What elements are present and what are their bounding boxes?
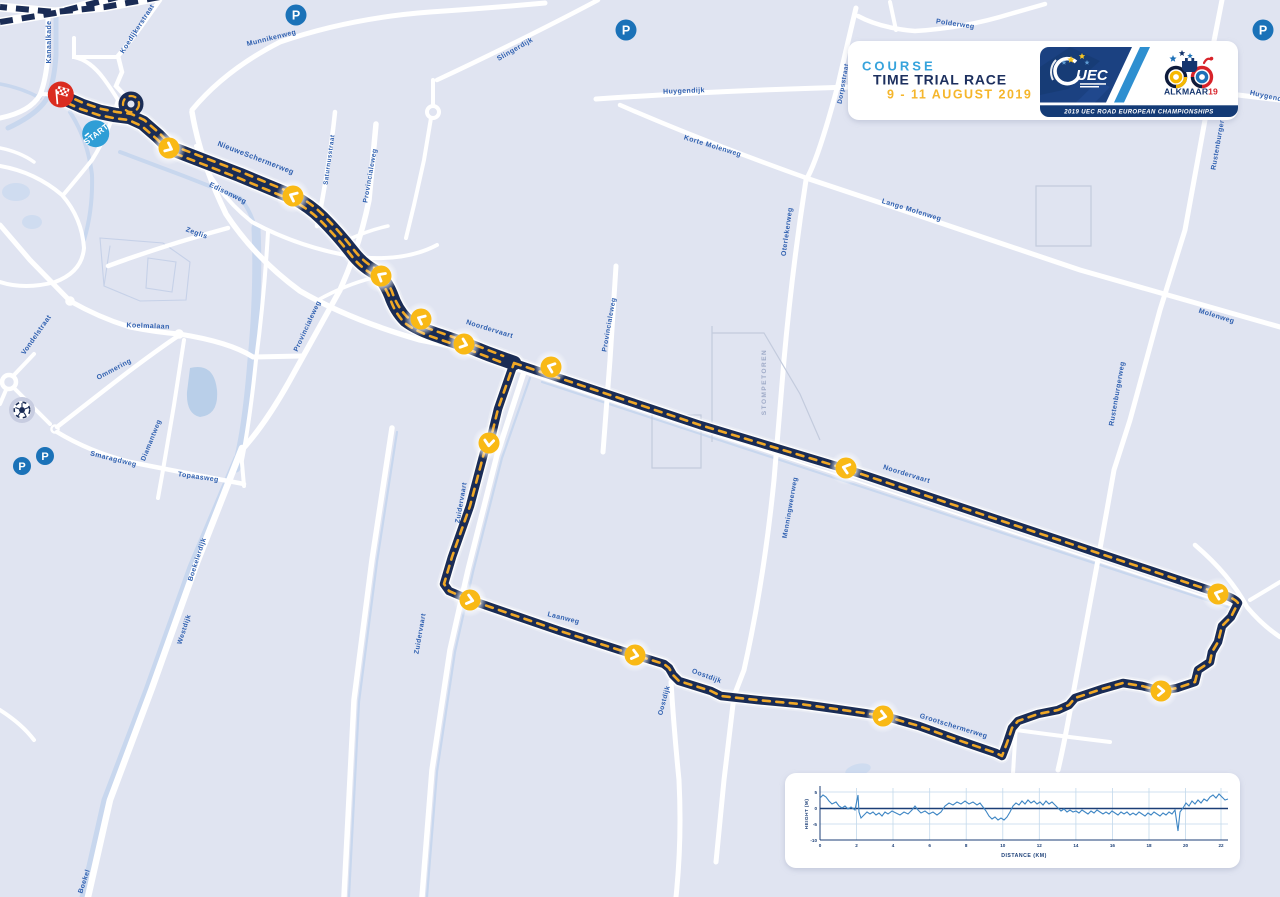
svg-text:DISTANCE (KM): DISTANCE (KM) [1001,853,1047,859]
svg-text:P: P [622,23,630,37]
svg-text:22: 22 [1218,843,1224,848]
svg-text:6: 6 [928,843,931,848]
svg-text:14: 14 [1073,843,1079,848]
svg-text:2: 2 [855,843,858,848]
svg-text:12: 12 [1037,843,1043,848]
svg-text:4: 4 [892,843,895,848]
svg-text:ALKMAAR19: ALKMAAR19 [1164,87,1218,97]
svg-text:9 - 11 AUGUST 2019: 9 - 11 AUGUST 2019 [887,88,1032,102]
svg-text:8: 8 [965,843,968,848]
svg-text:10: 10 [1000,843,1006,848]
svg-text:STOMPETOREN: STOMPETOREN [761,349,768,415]
svg-text:-5: -5 [813,822,818,827]
svg-text:-10: -10 [810,838,817,843]
svg-text:18: 18 [1146,843,1152,848]
svg-text:P: P [292,8,300,22]
svg-text:20: 20 [1183,843,1189,848]
svg-text:5: 5 [814,790,817,795]
svg-text:Huygendijk: Huygendijk [663,87,705,95]
svg-text:P: P [1259,23,1267,37]
svg-text:TIME TRIAL RACE: TIME TRIAL RACE [873,72,1007,88]
svg-text:P: P [18,461,25,473]
svg-text:0: 0 [819,843,822,848]
svg-text:2019 UEC ROAD EUROPEAN CHAMPIO: 2019 UEC ROAD EUROPEAN CHAMPIONSHIPS [1063,110,1213,116]
svg-text:0: 0 [814,806,817,811]
svg-text:UEC: UEC [1076,67,1109,84]
svg-text:HEIGHT (M): HEIGHT (M) [804,799,810,830]
svg-text:16: 16 [1110,843,1116,848]
svg-text:P: P [41,451,48,463]
svg-text:Kanaalkade: Kanaalkade [46,21,53,64]
